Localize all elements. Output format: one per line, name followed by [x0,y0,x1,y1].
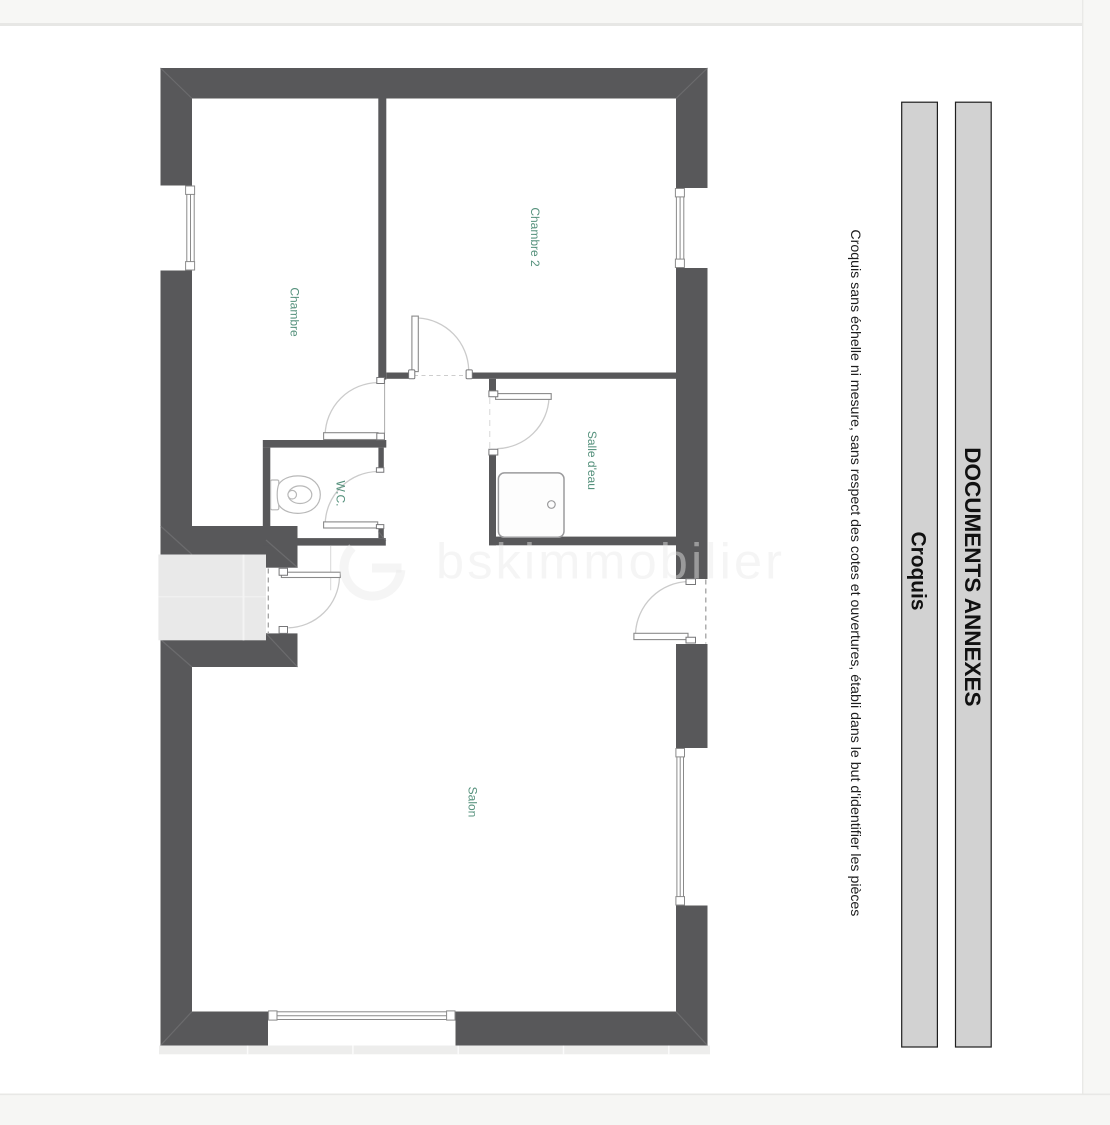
svg-text:DOCUMENTS ANNEXES: DOCUMENTS ANNEXES [960,447,985,706]
svg-text:Chambre 2: Chambre 2 [528,207,542,267]
svg-text:bskimmobilier: bskimmobilier [436,533,782,590]
svg-text:Salon: Salon [466,787,480,818]
svg-text:Chambre: Chambre [288,287,302,337]
svg-text:Salle d'eau: Salle d'eau [585,431,599,490]
svg-text:Croquis: Croquis [907,532,930,611]
svg-text:Croquis sans échelle ni mesure: Croquis sans échelle ni mesure, sans res… [848,229,864,916]
svg-text:W.C.: W.C. [334,481,348,507]
